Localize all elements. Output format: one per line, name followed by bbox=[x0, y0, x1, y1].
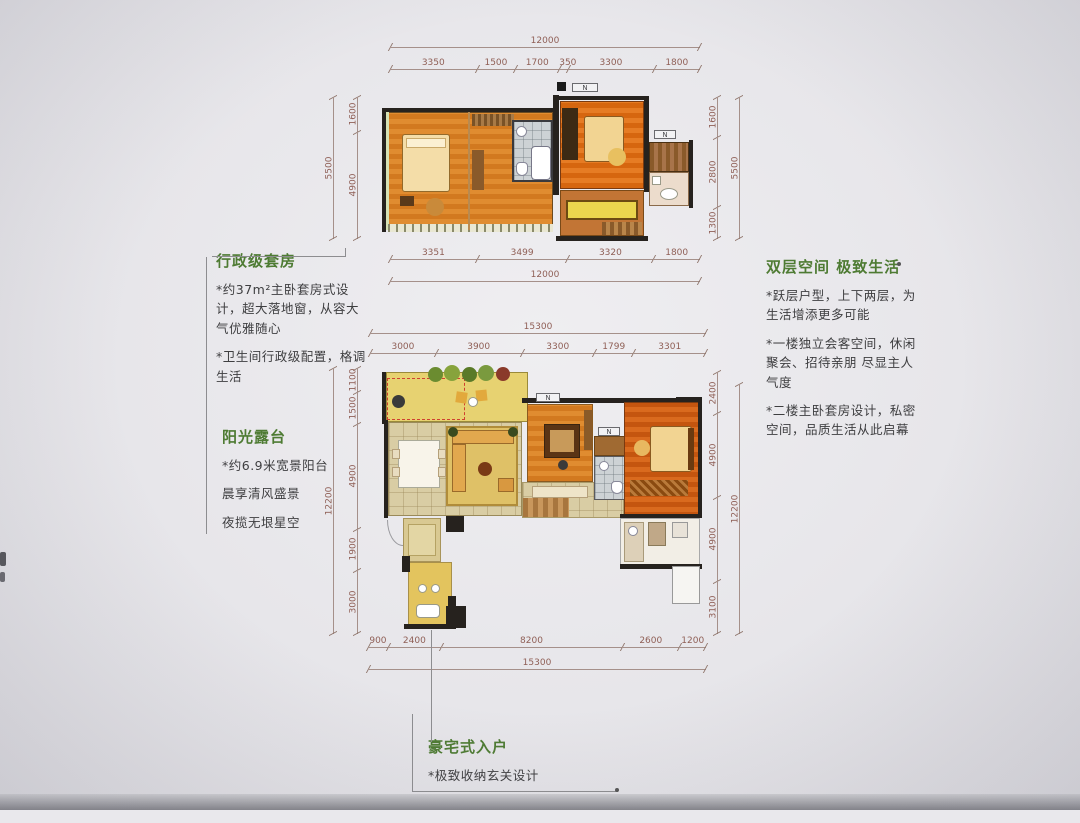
terrace-table bbox=[468, 397, 478, 407]
master-bed-pillows bbox=[406, 138, 446, 148]
kitchen-sink bbox=[628, 526, 638, 536]
dim-upper-left-outer: 5500 bbox=[322, 97, 338, 239]
dim-upper-top-total: 12000 bbox=[390, 36, 700, 52]
annotation-executive-suite: 行政级套房 *约37m²主卧套房式设计，超大落地窗，从容大气优雅随心*卫生间行政… bbox=[216, 250, 366, 395]
dim-upper-top-segments: 33501500170035033001800 bbox=[390, 58, 700, 74]
wall bbox=[556, 96, 648, 100]
annotation-body-double-space: *跃层户型，上下两层，为生活增添更多可能*一楼独立会客空间，休闲聚会、招待亲朋 … bbox=[766, 286, 920, 440]
annotation-sun-terrace: 阳光露台 *约6.9米宽景阳台晨享清风盛景夜揽无垠星空 bbox=[222, 426, 357, 541]
sofa bbox=[452, 430, 514, 444]
wall bbox=[446, 606, 466, 628]
leader-entry-vertical bbox=[431, 630, 432, 742]
plant-pot bbox=[392, 395, 405, 408]
plant bbox=[444, 365, 460, 381]
photo-artifact bbox=[0, 572, 5, 582]
annotation-double-space: 双层空间 极致生活 *跃层户型，上下两层，为生活增添更多可能*一楼独立会客空间，… bbox=[766, 256, 920, 449]
leader-executive-corner bbox=[345, 248, 346, 257]
bath-2-tub bbox=[660, 188, 678, 200]
leader-entry-end-dot bbox=[615, 788, 619, 792]
closet-bench bbox=[472, 150, 484, 190]
leader-entry-bracket-vertical bbox=[412, 714, 413, 792]
annotation-body-executive-suite: *约37m²主卧套房式设计，超大落地窗，从容大气优雅随心*卫生间行政级配置，格调… bbox=[216, 280, 366, 386]
dim-lower-bottom-segments: 9002400820026001200 bbox=[368, 636, 706, 652]
cushion bbox=[455, 391, 467, 403]
wall bbox=[698, 402, 702, 518]
foyer-rug bbox=[408, 524, 436, 556]
brochure-photo: 12000 33501500170035033001800 3351349933… bbox=[0, 0, 1080, 810]
leader-entry-bracket-horizontal bbox=[412, 791, 618, 792]
wardrobe-hatch bbox=[630, 480, 688, 496]
study-wardrobe bbox=[584, 410, 592, 450]
closet-divider bbox=[468, 112, 470, 230]
annotation-title-sun-terrace: 阳光露台 bbox=[222, 426, 357, 447]
stair-steps bbox=[602, 222, 642, 235]
wall bbox=[384, 420, 388, 518]
rug bbox=[634, 440, 650, 456]
fridge bbox=[672, 522, 688, 538]
wardrobe-hatch bbox=[472, 114, 514, 126]
sink bbox=[516, 126, 527, 137]
desk-top bbox=[550, 430, 574, 452]
plant bbox=[496, 367, 510, 381]
dim-lower-top-segments: 30003900330017993301 bbox=[370, 342, 706, 358]
utility-sink bbox=[416, 604, 440, 618]
room-closet-2 bbox=[649, 142, 689, 172]
coffee-table bbox=[478, 462, 492, 476]
main-bed bbox=[650, 426, 692, 472]
wall bbox=[382, 108, 386, 232]
dining-chair bbox=[392, 449, 400, 459]
stairs bbox=[523, 498, 569, 517]
plant bbox=[478, 365, 494, 381]
plant bbox=[448, 427, 458, 437]
desk-chair bbox=[558, 460, 568, 470]
dim-upper-right-segments: 160028001300 bbox=[706, 97, 722, 239]
bay-window bbox=[672, 566, 700, 604]
wall bbox=[689, 140, 693, 208]
annotation-body-sun-terrace: *约6.9米宽景阳台晨享清风盛景夜揽无垠星空 bbox=[222, 456, 357, 532]
dim-upper-right-outer: 5500 bbox=[728, 97, 744, 239]
toilet bbox=[611, 481, 623, 494]
sink bbox=[599, 461, 609, 471]
dim-upper-bottom-total: 12000 bbox=[390, 270, 700, 286]
stair-runner bbox=[566, 200, 638, 220]
floor-plan-lower: N N bbox=[380, 365, 705, 635]
plant bbox=[428, 367, 443, 382]
wall bbox=[402, 556, 410, 572]
leader-executive-horizontal bbox=[212, 256, 346, 257]
leader-left-vertical bbox=[206, 257, 207, 534]
headboard bbox=[688, 428, 694, 470]
dim-lower-right-outer: 12200 bbox=[728, 384, 744, 634]
legend-square bbox=[557, 82, 566, 91]
dim-lower-bottom-total: 15300 bbox=[368, 658, 706, 674]
plant bbox=[462, 367, 477, 382]
toilet bbox=[516, 162, 528, 176]
wall bbox=[384, 108, 556, 112]
balcony-rail bbox=[388, 224, 553, 232]
wardrobe bbox=[562, 108, 578, 160]
wall bbox=[446, 516, 464, 532]
stove bbox=[648, 522, 666, 546]
photo-artifact bbox=[0, 552, 6, 566]
wall bbox=[556, 236, 648, 241]
photo-edge-bottom bbox=[0, 794, 1080, 810]
marker-n-lower-2: N bbox=[598, 427, 620, 436]
console-table bbox=[532, 486, 588, 498]
nightstand bbox=[400, 196, 414, 206]
burner bbox=[418, 584, 427, 593]
bath-2-sink bbox=[652, 176, 661, 185]
burner bbox=[431, 584, 440, 593]
leader-double-space-dot bbox=[897, 262, 901, 266]
bathtub bbox=[531, 146, 551, 180]
bath-cabinet bbox=[594, 436, 627, 456]
annotation-title-double-space: 双层空间 极致生活 bbox=[766, 256, 920, 277]
wall bbox=[382, 372, 386, 424]
dim-upper-bottom-segments: 3351349933201800 bbox=[390, 248, 700, 264]
rug bbox=[426, 198, 444, 216]
annotation-title-mansion-entry: 豪宅式入户 bbox=[428, 736, 613, 757]
wall bbox=[553, 95, 559, 195]
marker-n-upper-right: N bbox=[654, 130, 676, 139]
rug bbox=[608, 148, 626, 166]
plant bbox=[508, 427, 518, 437]
dim-lower-top-total: 15300 bbox=[370, 322, 706, 338]
annotation-title-executive-suite: 行政级套房 bbox=[216, 250, 366, 271]
dining-chair bbox=[438, 449, 446, 459]
dining-table bbox=[398, 440, 440, 488]
armchair bbox=[498, 478, 514, 492]
dining-chair bbox=[392, 467, 400, 477]
dim-lower-right-segments: 2400490049003100 bbox=[706, 372, 722, 634]
sofa-side bbox=[452, 444, 466, 492]
legend-n-box: N bbox=[572, 83, 598, 92]
marker-n-lower-1: N bbox=[536, 393, 560, 402]
entry-door-arc bbox=[387, 520, 403, 546]
dining-chair bbox=[438, 467, 446, 477]
dim-upper-left-segments: 16004900 bbox=[346, 97, 362, 239]
floor-plan-upper: N N bbox=[380, 90, 700, 245]
